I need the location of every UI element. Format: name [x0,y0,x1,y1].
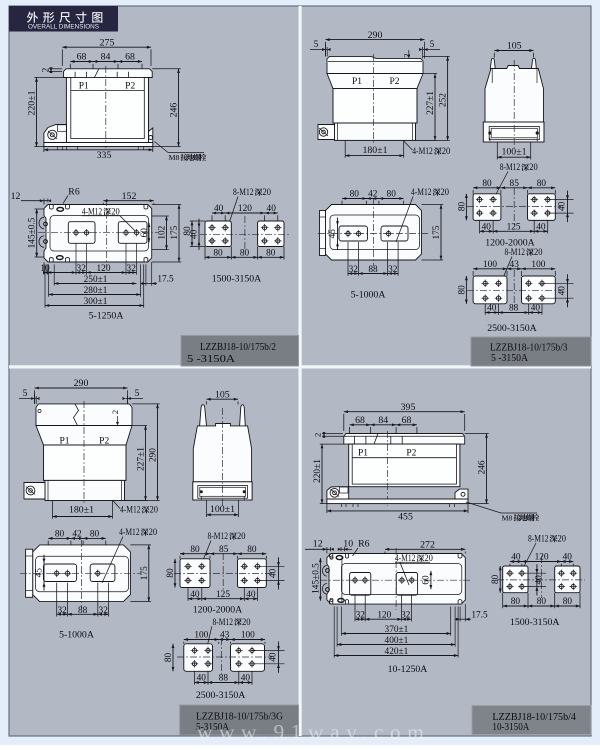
svg-text:P1: P1 [59,437,69,447]
svg-text:68: 68 [77,52,87,63]
svg-text:40: 40 [536,223,546,233]
svg-text:40: 40 [557,201,567,211]
svg-text:145±0.5: 145±0.5 [311,563,321,594]
svg-text:1200-2000A: 1200-2000A [485,237,535,248]
svg-text:100: 100 [483,260,497,270]
svg-text:2: 2 [42,67,52,72]
svg-text:4-M12: 4-M12 [411,188,432,198]
svg-text:40: 40 [246,590,256,600]
svg-text:370±1: 370±1 [385,625,409,635]
svg-text:80: 80 [387,190,397,200]
svg-text:68: 68 [402,415,412,426]
svg-text:420±1: 420±1 [385,647,409,657]
svg-text:42: 42 [368,190,378,200]
svg-text:85: 85 [219,545,229,555]
svg-text:300±1: 300±1 [84,297,108,307]
svg-text:40: 40 [511,553,521,563]
svg-text:20: 20 [441,188,450,198]
svg-text:www.91way.com: www.91way.com [197,720,430,744]
svg-text:80: 80 [190,545,200,555]
svg-text:88: 88 [509,304,519,314]
svg-text:100: 100 [531,260,545,270]
svg-text:8-M12: 8-M12 [528,535,549,545]
svg-text:84: 84 [101,52,111,63]
svg-text:P2: P2 [99,437,109,447]
svg-text:32: 32 [356,611,366,621]
svg-text:68: 68 [125,52,135,63]
svg-text:P2: P2 [125,82,135,92]
svg-text:100: 100 [241,631,255,641]
svg-text:80: 80 [511,597,521,607]
svg-text:100±1: 100±1 [210,504,235,515]
svg-text:290: 290 [74,378,89,389]
svg-text:84: 84 [378,415,388,426]
svg-text:105: 105 [507,41,522,52]
svg-text:12: 12 [313,539,323,550]
svg-text:68: 68 [355,415,365,426]
svg-text:80: 80 [240,249,250,259]
svg-text:P1: P1 [358,448,368,458]
svg-text:M8: M8 [169,153,180,162]
svg-text:40: 40 [241,674,251,684]
svg-text:20: 20 [263,188,272,198]
svg-text:42: 42 [72,530,82,540]
svg-text:5: 5 [23,389,28,399]
svg-text:125: 125 [216,590,230,600]
svg-text:20: 20 [149,528,158,538]
svg-text:32: 32 [99,606,109,616]
svg-text:40: 40 [190,590,200,600]
svg-text:R6: R6 [358,539,370,550]
svg-text:2500-3150A: 2500-3150A [196,690,246,701]
svg-text:40: 40 [535,575,545,585]
svg-text:32: 32 [57,606,67,616]
svg-text:R6: R6 [68,186,80,197]
svg-text:88: 88 [78,606,88,616]
svg-text:180±1: 180±1 [69,505,94,516]
svg-text:40: 40 [267,204,277,214]
svg-text:80: 80 [457,285,467,295]
svg-text:335: 335 [97,150,112,161]
svg-text:43: 43 [510,260,520,270]
svg-text:80: 80 [55,530,65,540]
svg-text:272: 272 [420,540,435,551]
svg-text:145±0.5: 145±0.5 [28,217,38,248]
svg-text:20: 20 [558,535,567,545]
svg-text:80: 80 [164,653,174,663]
svg-text:40: 40 [214,204,224,214]
svg-text:80: 80 [90,530,100,540]
svg-text:5-1000A: 5-1000A [351,290,386,301]
svg-text:80: 80 [350,190,360,200]
svg-text:20: 20 [237,532,246,542]
svg-text:102: 102 [158,225,168,239]
svg-text:20: 20 [242,618,251,628]
svg-text:2: 2 [110,410,120,414]
svg-text:40: 40 [558,286,568,296]
svg-text:40: 40 [269,568,279,578]
svg-text:85: 85 [510,179,520,189]
svg-text:290: 290 [368,30,383,41]
svg-text:17.5: 17.5 [471,611,488,621]
svg-text:40: 40 [563,553,573,563]
svg-text:8-M12: 8-M12 [505,248,526,258]
svg-text:10-1250A: 10-1250A [388,664,428,675]
svg-text:20: 20 [150,506,159,516]
svg-text:280±1: 280±1 [84,286,108,296]
svg-text:32: 32 [401,611,411,621]
svg-text:275: 275 [100,37,115,48]
svg-text:246: 246 [478,460,488,474]
svg-text:455: 455 [398,512,413,523]
svg-text:20: 20 [442,147,451,157]
svg-text:P1: P1 [352,77,362,87]
svg-text:2: 2 [402,53,412,57]
svg-text:400±1: 400±1 [385,636,409,646]
svg-text:20: 20 [534,248,543,258]
svg-text:105: 105 [215,389,230,400]
svg-text:120: 120 [238,204,252,214]
svg-text:1500-3150A: 1500-3150A [212,274,262,285]
svg-text:10: 10 [343,539,353,550]
svg-text:8-M12: 8-M12 [233,188,254,198]
svg-text:2: 2 [312,433,322,437]
svg-text:40: 40 [197,674,207,684]
svg-text:125: 125 [507,223,521,233]
svg-text:252: 252 [439,93,449,107]
svg-text:LZZBJ18-10/175b/2: LZZBJ18-10/175b/2 [200,342,276,353]
svg-text:80: 80 [563,597,573,607]
svg-text:220±1: 220±1 [27,90,38,115]
svg-text:80: 80 [457,202,467,212]
svg-text:120: 120 [377,611,391,621]
svg-text:120: 120 [535,553,549,563]
svg-text:5: 5 [135,389,140,399]
svg-text:152: 152 [122,191,137,202]
svg-text:88: 88 [368,265,378,275]
svg-text:250±1: 250±1 [84,275,108,285]
svg-text:5-1000A: 5-1000A [59,630,94,641]
svg-text:OVERALL DIMENSIONS: OVERALL DIMENSIONS [28,24,99,31]
svg-text:1200-2000A: 1200-2000A [193,605,243,616]
svg-text:80: 80 [491,574,501,584]
svg-text:120: 120 [97,264,111,274]
svg-text:4-M12: 4-M12 [119,528,140,538]
svg-text:10-3150A: 10-3150A [492,722,529,733]
svg-text:8-M12: 8-M12 [500,163,521,173]
svg-text:40: 40 [487,304,497,314]
svg-text:45: 45 [328,229,338,239]
svg-text:100±1: 100±1 [502,147,527,158]
svg-text:P2: P2 [389,77,399,87]
svg-text:290: 290 [149,448,159,462]
svg-text:227±1: 227±1 [426,91,436,115]
svg-text:60: 60 [422,575,432,585]
svg-text:227±1: 227±1 [137,447,147,471]
svg-text:LZZBJ18-10/175b/3: LZZBJ18-10/175b/3 [490,342,568,353]
svg-text:20: 20 [529,163,538,173]
svg-text:80: 80 [247,545,257,555]
svg-text:100: 100 [194,631,208,641]
svg-text:60: 60 [140,228,150,238]
svg-text:175: 175 [432,225,442,239]
svg-text:40: 40 [531,304,541,314]
svg-text:32: 32 [127,264,137,274]
svg-text:80: 80 [537,179,547,189]
svg-text:32: 32 [77,264,87,274]
svg-text:5-1250A: 5-1250A [89,311,124,322]
svg-text:180±1: 180±1 [363,145,388,156]
svg-text:5: 5 [430,40,435,50]
svg-text:5 -3150A: 5 -3150A [187,354,235,365]
svg-text:40: 40 [482,223,492,233]
svg-text:175: 175 [140,566,150,580]
svg-text:8-M12: 8-M12 [213,618,234,628]
svg-text:32: 32 [349,265,359,275]
svg-text:80: 80 [266,249,276,259]
svg-text:88: 88 [219,674,229,684]
svg-text:1500-3150A: 1500-3150A [510,617,560,628]
svg-text:220±1: 220±1 [313,459,323,483]
svg-text:246: 246 [169,103,180,118]
svg-text:395: 395 [401,402,416,413]
svg-text:40: 40 [190,229,200,239]
svg-text:12: 12 [11,191,21,202]
svg-text:4-M12: 4-M12 [120,506,141,516]
svg-text:5 -3150A: 5 -3150A [491,353,528,364]
svg-text:32: 32 [388,265,398,275]
svg-text:80: 80 [482,179,492,189]
svg-text:80: 80 [537,597,547,607]
svg-text:2500-3150A: 2500-3150A [487,323,537,334]
svg-text:45: 45 [35,568,45,578]
svg-text:5: 5 [314,40,319,50]
svg-text:40: 40 [268,652,278,662]
svg-text:P2: P2 [406,448,416,458]
svg-text:175: 175 [170,225,180,239]
svg-text:80: 80 [213,249,223,259]
svg-text:M8: M8 [502,514,513,523]
svg-text:17.5: 17.5 [157,275,174,285]
svg-text:4-M12: 4-M12 [412,147,433,157]
svg-text:P1: P1 [79,82,89,92]
svg-text:80: 80 [166,568,176,578]
